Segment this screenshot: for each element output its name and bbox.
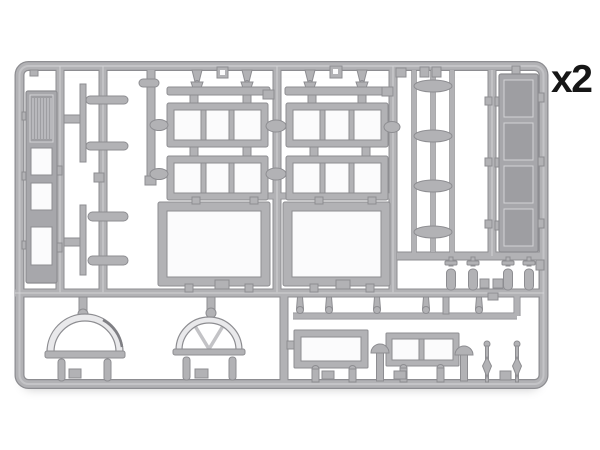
finial-pin-parts xyxy=(483,341,522,382)
plain-arched-fanlight xyxy=(45,297,125,381)
two-pane-window xyxy=(386,333,459,366)
lintel-bar xyxy=(285,87,390,95)
three-pane-window-4 xyxy=(286,156,388,200)
top-rail-nub xyxy=(30,70,38,76)
three-pane-window-1 xyxy=(167,103,268,147)
product-photo: x2 xyxy=(0,0,600,450)
large-open-frame-2 xyxy=(283,197,390,292)
three-pane-window-2 xyxy=(167,156,268,200)
top-parts-column-1 xyxy=(167,67,274,104)
chimney-pot-parts xyxy=(445,257,544,290)
quantity-label: x2 xyxy=(551,60,591,99)
lintel-bar xyxy=(167,87,270,95)
flat-strip-parts xyxy=(80,84,86,275)
sprue-frame xyxy=(15,66,544,384)
lens-bar-parts xyxy=(396,67,452,238)
runner-clip xyxy=(94,173,104,182)
spoked-arched-fanlight xyxy=(173,297,245,380)
top-parts-column-2 xyxy=(285,66,393,104)
large-open-frame-1 xyxy=(158,197,270,292)
single-pane-window xyxy=(287,330,368,368)
three-pane-window-3 xyxy=(286,103,388,147)
sprue-illustration xyxy=(0,0,600,450)
louvered-door-part xyxy=(22,91,81,283)
